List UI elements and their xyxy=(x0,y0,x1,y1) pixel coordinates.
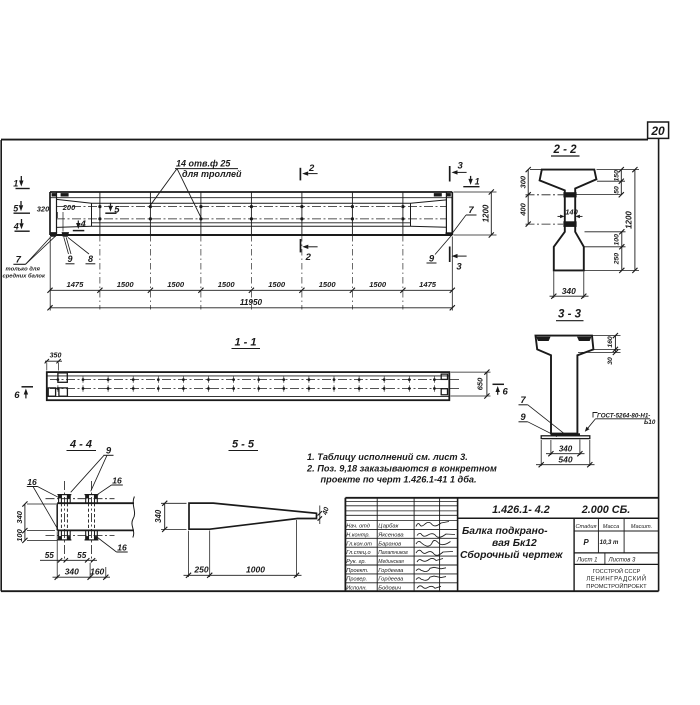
svg-text:Бодович: Бодович xyxy=(378,586,401,592)
svg-text:55: 55 xyxy=(77,551,87,560)
svg-text:1500: 1500 xyxy=(117,280,135,289)
svg-text:340: 340 xyxy=(562,286,576,296)
svg-text:Мединская: Мединская xyxy=(378,559,404,565)
svg-text:Балка подкрано-: Балка подкрано- xyxy=(462,526,548,537)
svg-text:1500: 1500 xyxy=(369,280,387,289)
svg-text:Н.контр.: Н.контр. xyxy=(346,532,370,538)
svg-text:340: 340 xyxy=(154,509,163,523)
svg-text:Гл.спец.о: Гл.спец.о xyxy=(346,550,370,556)
svg-text:100: 100 xyxy=(614,234,621,246)
svg-text:16: 16 xyxy=(27,477,37,487)
svg-text:160: 160 xyxy=(607,336,614,348)
svg-text:5 - 5: 5 - 5 xyxy=(232,438,255,450)
svg-text:1: 1 xyxy=(475,177,480,187)
svg-text:1000: 1000 xyxy=(246,565,265,575)
svg-text:Рук. гр.: Рук. гр. xyxy=(346,559,366,565)
svg-text:9: 9 xyxy=(67,254,72,264)
svg-text:1.426.1- 4.2: 1.426.1- 4.2 xyxy=(492,504,550,516)
svg-text:1: 1 xyxy=(13,178,18,188)
svg-text:Гл.кон.от: Гл.кон.от xyxy=(346,541,372,547)
svg-text:1475: 1475 xyxy=(66,280,84,289)
svg-text:2.000 СБ.: 2.000 СБ. xyxy=(581,504,630,516)
svg-text:проекте по черт 1.426.1-41 1 д: проекте по черт 1.426.1-41 1 дба. xyxy=(321,475,477,485)
svg-text:1500: 1500 xyxy=(319,280,337,289)
svg-text:400: 400 xyxy=(518,202,527,216)
svg-text:3: 3 xyxy=(456,262,462,273)
svg-text:300: 300 xyxy=(518,175,527,188)
svg-text:Р: Р xyxy=(583,538,589,547)
svg-text:5: 5 xyxy=(13,203,19,213)
svg-text:Гордеева: Гордеева xyxy=(378,577,404,583)
svg-text:1500: 1500 xyxy=(167,280,185,289)
svg-text:1475: 1475 xyxy=(419,280,437,289)
svg-text:9: 9 xyxy=(106,445,112,456)
svg-text:1500: 1500 xyxy=(218,280,236,289)
svg-text:140: 140 xyxy=(565,207,578,216)
svg-text:650: 650 xyxy=(476,377,485,390)
svg-text:160: 160 xyxy=(90,567,104,577)
svg-text:2. Поз. 9,18 заказываются в ко: 2. Поз. 9,18 заказываются в конкретном xyxy=(306,463,497,473)
svg-text:Яксенова: Яксенова xyxy=(377,532,404,538)
svg-text:4: 4 xyxy=(80,219,87,230)
svg-text:Исполн.: Исполн. xyxy=(346,586,367,592)
svg-text:320: 320 xyxy=(37,204,50,213)
svg-text:340: 340 xyxy=(65,567,79,577)
svg-text:250: 250 xyxy=(614,253,621,266)
svg-text:Стадия: Стадия xyxy=(576,524,597,530)
svg-text:16: 16 xyxy=(117,542,127,552)
svg-text:Проект.: Проект. xyxy=(346,568,368,574)
svg-text:ГОСТ-5264-80-Н1-: ГОСТ-5264-80-Н1- xyxy=(597,412,650,419)
svg-text:Царбак: Царбак xyxy=(378,524,398,530)
svg-text:Лист 1: Лист 1 xyxy=(576,557,597,563)
svg-text:Листов 3: Листов 3 xyxy=(608,557,637,563)
svg-text:55: 55 xyxy=(45,551,55,560)
svg-text:вая Бк12: вая Бк12 xyxy=(492,538,537,549)
svg-text:3 - 3: 3 - 3 xyxy=(558,309,582,321)
svg-text:540: 540 xyxy=(558,455,572,465)
svg-text:Провер.: Провер. xyxy=(346,577,367,583)
svg-text:Масшт.: Масшт. xyxy=(631,524,652,530)
svg-text:ГОССТРОЙ СССР: ГОССТРОЙ СССР xyxy=(593,567,641,575)
svg-text:Сборочный чертеж: Сборочный чертеж xyxy=(460,549,564,561)
svg-text:1200: 1200 xyxy=(625,211,634,229)
svg-text:100: 100 xyxy=(15,528,24,541)
svg-text:8: 8 xyxy=(88,254,93,264)
svg-text:11950: 11950 xyxy=(240,298,263,307)
svg-text:16: 16 xyxy=(112,475,122,485)
svg-text:Нач. отд: Нач. отд xyxy=(346,524,370,530)
svg-text:3: 3 xyxy=(458,160,464,171)
svg-text:20: 20 xyxy=(650,124,665,138)
svg-text:Баранов: Баранов xyxy=(378,541,401,547)
svg-text:2: 2 xyxy=(308,163,315,174)
svg-text:для троллей: для троллей xyxy=(182,169,242,179)
svg-text:10,3 т: 10,3 т xyxy=(600,540,619,546)
svg-text:средних балок: средних балок xyxy=(3,272,46,279)
svg-text:только для: только для xyxy=(6,266,41,272)
svg-text:Гордеева: Гордеева xyxy=(378,568,404,574)
svg-text:150: 150 xyxy=(613,170,620,182)
svg-text:1500: 1500 xyxy=(268,280,286,289)
svg-text:350: 350 xyxy=(50,353,62,360)
svg-text:4 - 4: 4 - 4 xyxy=(69,438,92,450)
svg-text:6: 6 xyxy=(503,387,509,398)
svg-text:1 - 1: 1 - 1 xyxy=(234,336,256,348)
svg-text:200: 200 xyxy=(62,203,76,212)
svg-text:Палатников: Палатников xyxy=(378,550,408,556)
svg-text:ЛЕНИНГРАДСКИЙ: ЛЕНИНГРАДСКИЙ xyxy=(586,575,646,583)
svg-text:ПРОМСТРОЙПРОЕКТ: ПРОМСТРОЙПРОЕКТ xyxy=(586,582,647,590)
svg-text:1. Таблицу исполнений см. лис: 1. Таблицу исполнений см. лист 3. xyxy=(307,452,468,462)
svg-text:1200: 1200 xyxy=(482,204,491,222)
svg-text:Ь10: Ь10 xyxy=(644,419,656,426)
svg-text:30: 30 xyxy=(607,357,614,365)
svg-text:50: 50 xyxy=(613,186,620,194)
svg-text:14 отв.ф 25: 14 отв.ф 25 xyxy=(176,159,231,169)
svg-text:2 - 2: 2 - 2 xyxy=(552,144,577,156)
svg-text:250: 250 xyxy=(193,565,208,575)
svg-text:340: 340 xyxy=(15,510,24,523)
svg-text:4: 4 xyxy=(13,221,19,231)
svg-text:Масса: Масса xyxy=(603,524,620,530)
svg-text:40: 40 xyxy=(322,506,331,516)
svg-text:340: 340 xyxy=(559,445,573,454)
svg-text:5: 5 xyxy=(114,204,120,215)
svg-text:2: 2 xyxy=(305,252,312,263)
svg-text:6: 6 xyxy=(14,390,20,401)
